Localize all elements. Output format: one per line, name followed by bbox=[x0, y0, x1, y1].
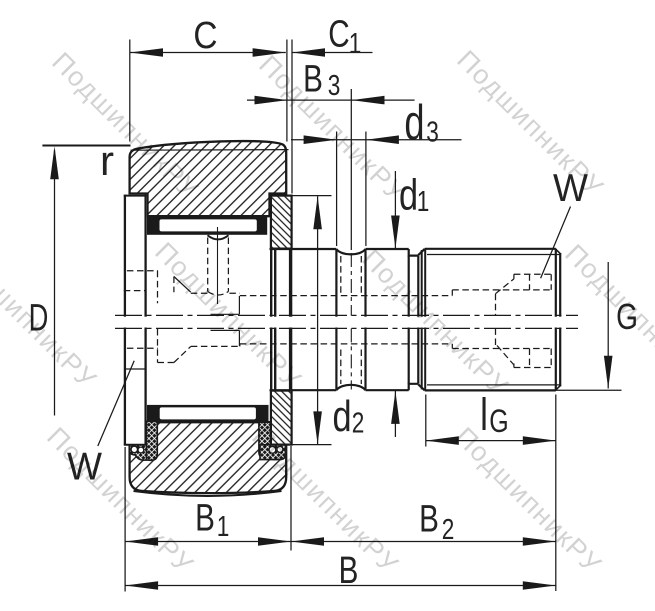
svg-text:r: r bbox=[100, 137, 114, 184]
svg-text:d: d bbox=[332, 392, 351, 441]
svg-text:1: 1 bbox=[417, 184, 430, 217]
svg-text:1: 1 bbox=[349, 26, 362, 59]
svg-text:B: B bbox=[419, 498, 439, 540]
svg-text:B: B bbox=[195, 497, 215, 539]
svg-text:C: C bbox=[328, 13, 349, 55]
svg-text:C: C bbox=[193, 14, 217, 56]
svg-text:G: G bbox=[489, 404, 508, 440]
svg-text:1: 1 bbox=[217, 509, 230, 542]
svg-text:d: d bbox=[404, 96, 424, 151]
svg-text:B: B bbox=[339, 550, 359, 592]
svg-text:2: 2 bbox=[352, 406, 365, 439]
svg-text:3: 3 bbox=[328, 68, 341, 101]
svg-text:3: 3 bbox=[426, 115, 439, 148]
svg-text:2: 2 bbox=[442, 512, 455, 545]
